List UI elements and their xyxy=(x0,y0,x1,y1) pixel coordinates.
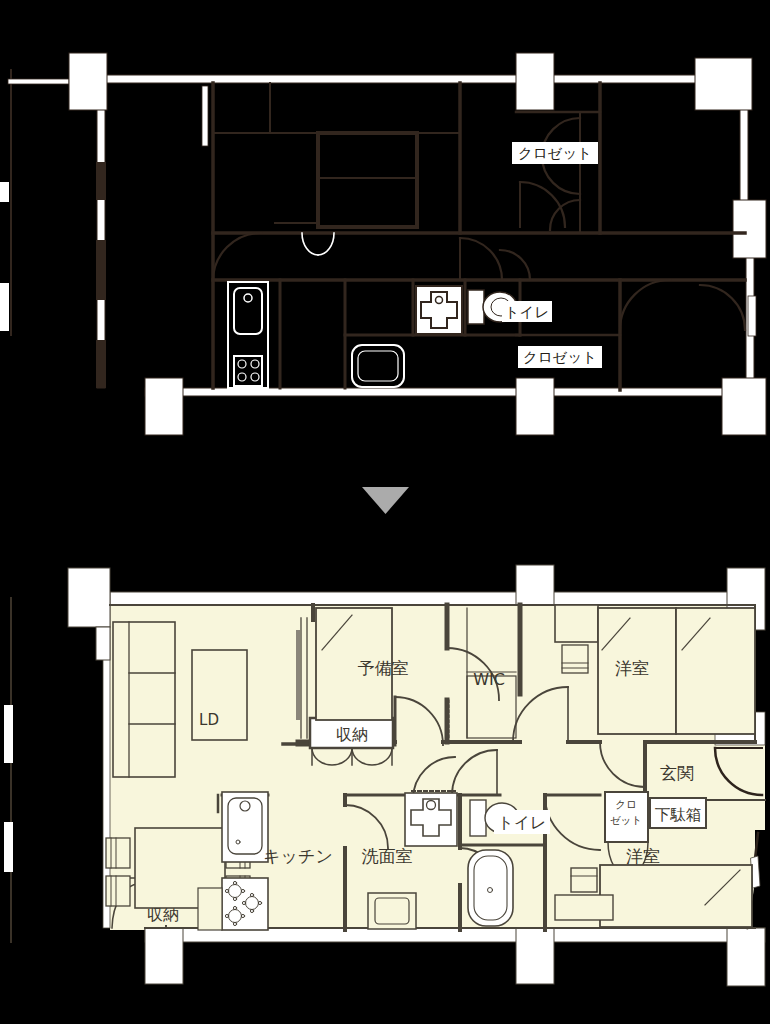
before-columns xyxy=(69,53,766,435)
before-bifold-doors xyxy=(302,233,334,255)
before-toilet-label: トイレ xyxy=(505,304,550,320)
before-interior-walls xyxy=(213,83,745,390)
before-left-wall-segments xyxy=(96,162,106,388)
after-closet-label-line2: ゼット xyxy=(610,814,642,826)
after-balcony-lines xyxy=(4,598,13,942)
before-kitchen-counter xyxy=(228,282,268,388)
before-closet-top-label: クロゼット xyxy=(518,145,592,161)
after-bedroom-bottom-furniture xyxy=(555,865,752,927)
before-floor-plan: クロゼット トイレ クロゼット xyxy=(0,53,766,435)
before-balcony-lines xyxy=(0,70,69,335)
after-ld-label: LD xyxy=(199,711,219,729)
after-floor-plan: 収納 収納 クロ ゼット 下駄箱 xyxy=(4,565,765,986)
after-spare-room-label: 予備室 xyxy=(358,658,409,678)
after-closet-label-line1: クロ xyxy=(615,798,637,810)
before-washbasin xyxy=(416,286,462,334)
after-bedroom-right-label: 洋室 xyxy=(615,658,649,678)
transition-arrow xyxy=(362,487,409,514)
after-kitchen-label: キッチン xyxy=(263,846,333,866)
after-entrance-label: 玄関 xyxy=(660,763,694,783)
after-wic-label: WIC xyxy=(473,670,505,689)
before-washer-tub xyxy=(352,345,404,387)
after-storage-center-label: 収納 xyxy=(336,725,368,744)
after-sofa xyxy=(113,622,175,777)
down-arrow-icon xyxy=(362,487,409,514)
before-tatami-room xyxy=(213,83,460,227)
after-washroom-label: 洗面室 xyxy=(362,846,413,866)
before-closet-bottom-label: クロゼット xyxy=(523,349,597,365)
after-toilet-label: トイレ xyxy=(497,813,546,832)
floor-plans-canvas: クロゼット トイレ クロゼット xyxy=(0,0,770,1024)
after-shoe-cabinet-label: 下駄箱 xyxy=(655,806,702,824)
after-bathtub xyxy=(468,850,513,926)
floorplan-page: クロゼット トイレ クロゼット xyxy=(0,0,770,1024)
before-perimeter-walls xyxy=(88,75,765,396)
after-bedroom-bottom-label: 洋室 xyxy=(626,846,660,866)
